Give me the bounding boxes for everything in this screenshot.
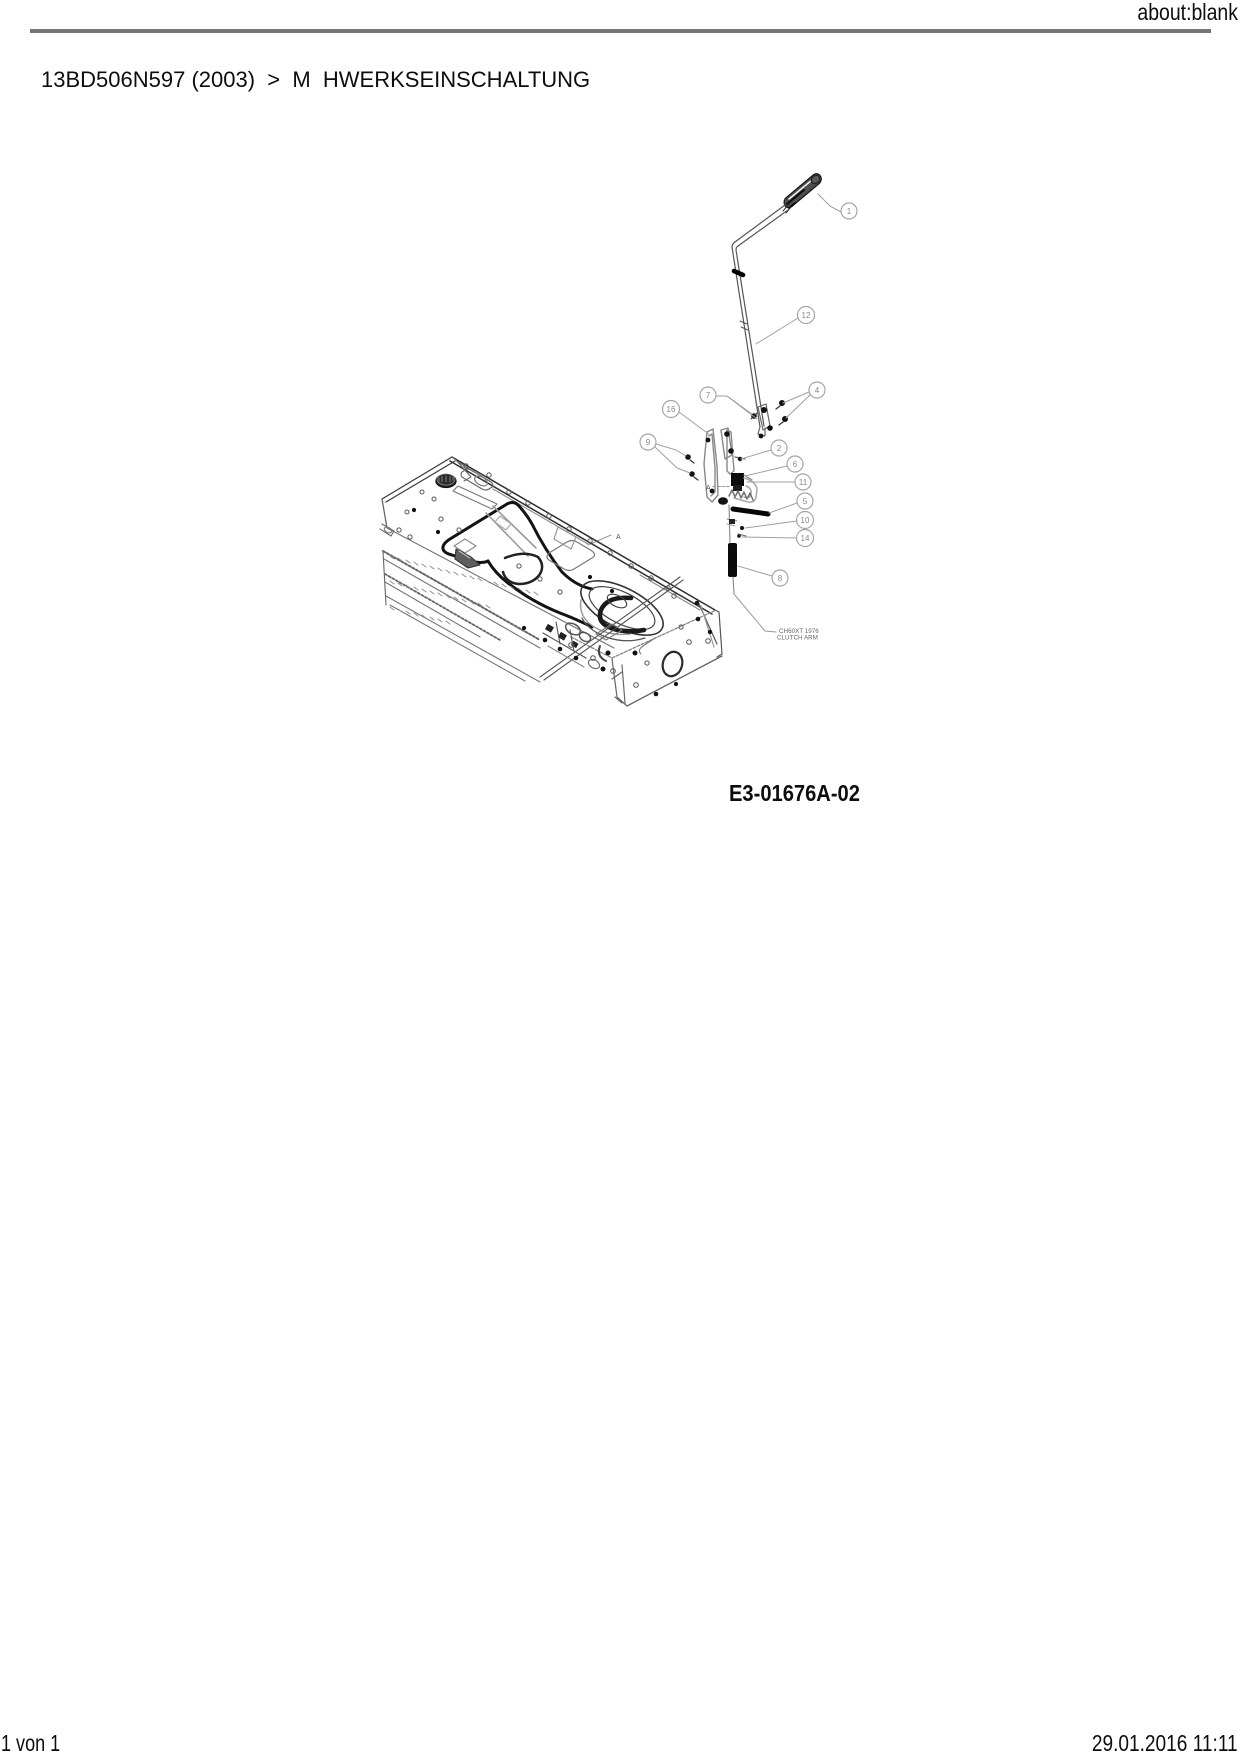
svg-text:A: A [706, 485, 711, 492]
svg-text:CLUTCH ARM: CLUTCH ARM [777, 635, 818, 642]
svg-text:8: 8 [778, 574, 783, 583]
svg-text:5: 5 [803, 497, 808, 506]
svg-text:A: A [616, 534, 621, 541]
svg-text:6: 6 [793, 460, 798, 469]
svg-text:10: 10 [801, 516, 810, 525]
svg-text:11: 11 [799, 478, 808, 487]
svg-text:2: 2 [777, 444, 782, 453]
svg-text:16: 16 [667, 405, 676, 414]
svg-text:4: 4 [815, 386, 820, 395]
svg-text:9: 9 [646, 438, 651, 447]
svg-text:7: 7 [706, 391, 711, 400]
svg-text:14: 14 [801, 534, 810, 543]
svg-text:12: 12 [802, 311, 811, 320]
svg-text:1: 1 [847, 207, 852, 216]
